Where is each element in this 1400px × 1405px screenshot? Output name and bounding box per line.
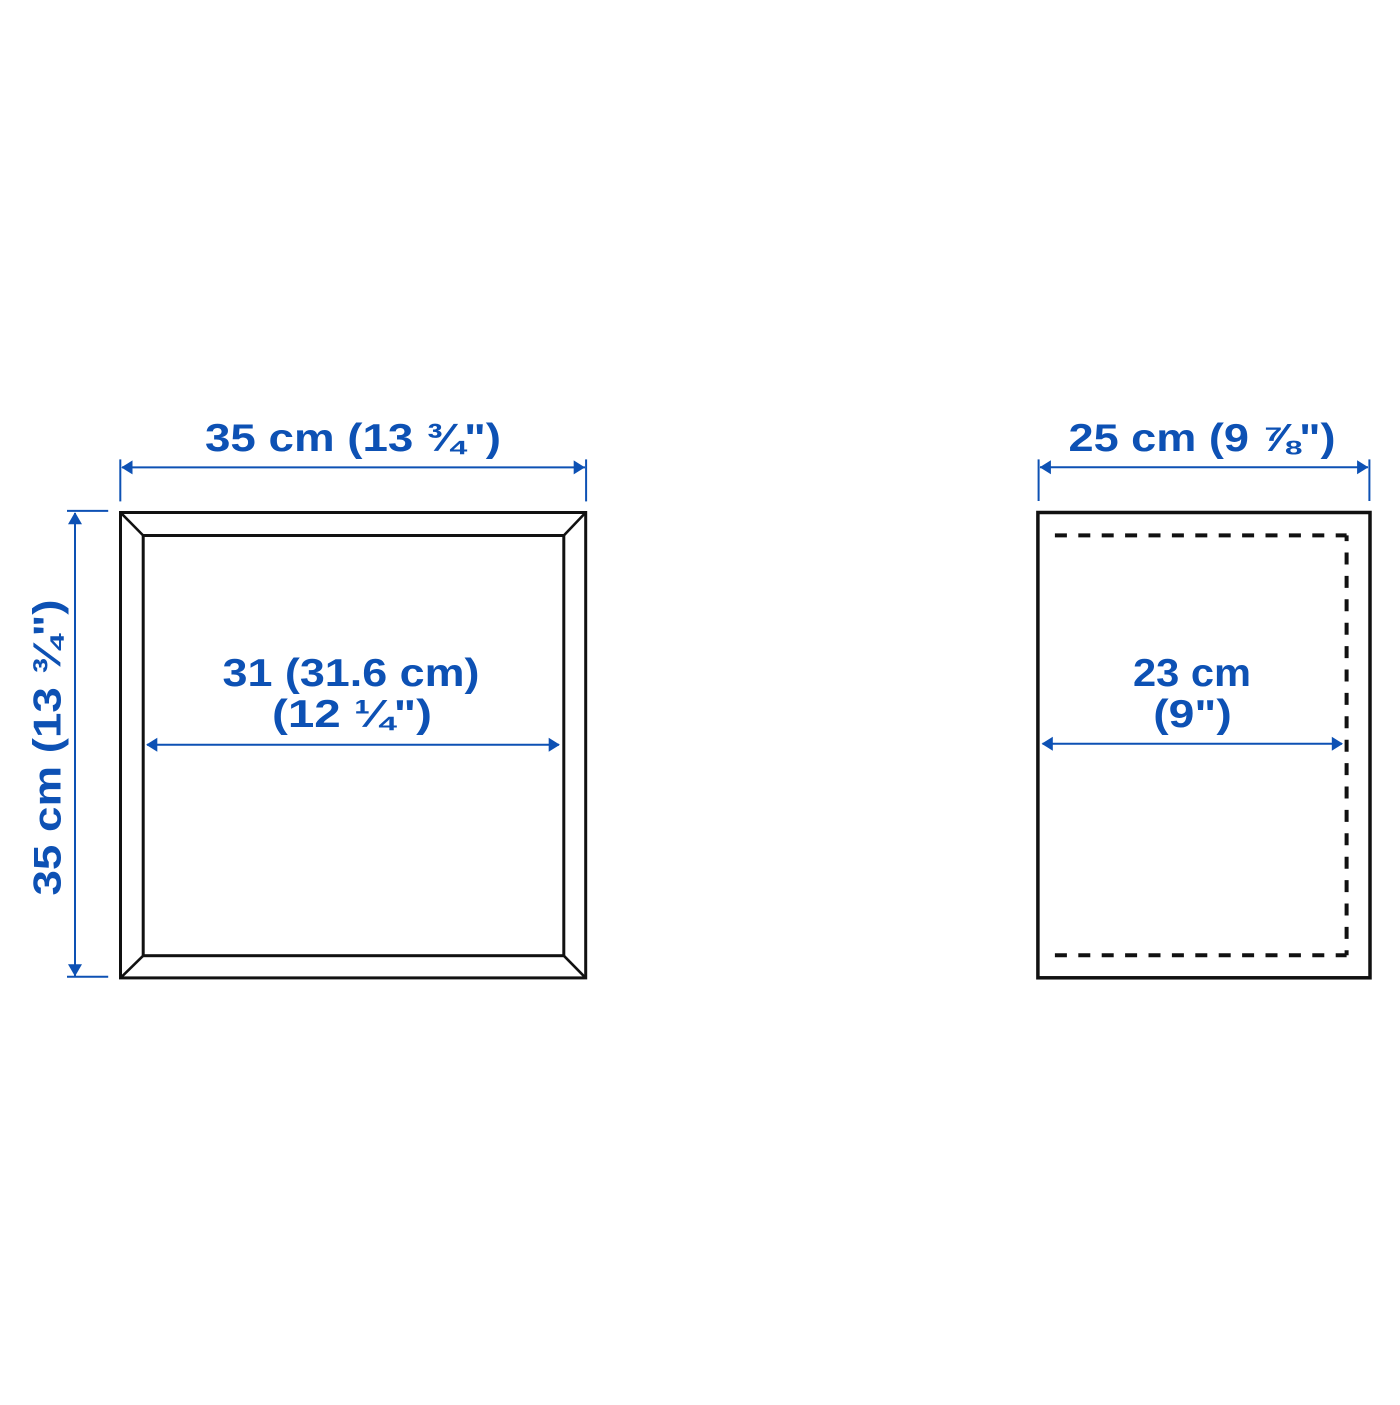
- svg-text:23 cm: 23 cm: [1133, 652, 1251, 695]
- svg-text:35 cm (13 ¾"): 35 cm (13 ¾"): [205, 417, 501, 460]
- svg-text:35 cm (13 ¾"): 35 cm (13 ¾"): [27, 600, 70, 896]
- svg-text:(12 ¼"): (12 ¼"): [272, 693, 432, 736]
- svg-text:31 (31.6 cm): 31 (31.6 cm): [223, 652, 480, 695]
- svg-text:25 cm (9 ⅞"): 25 cm (9 ⅞"): [1069, 417, 1336, 460]
- svg-text:(9"): (9"): [1153, 693, 1232, 736]
